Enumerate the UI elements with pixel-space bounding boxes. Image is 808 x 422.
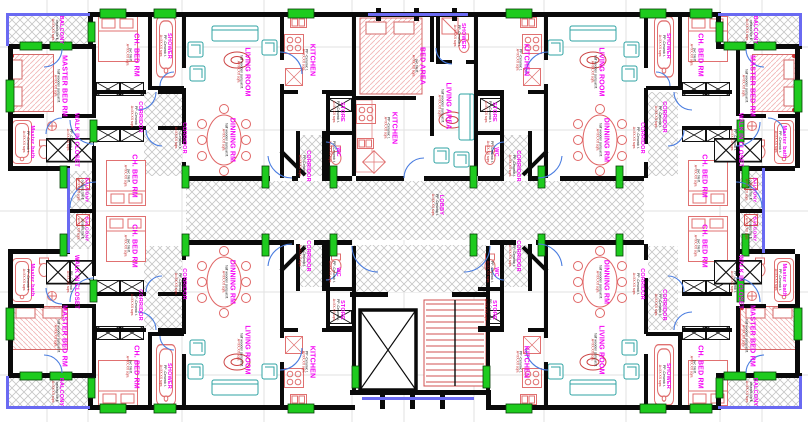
room-name: CORRIDOR (137, 101, 143, 133)
room-label: CORRIDOR PP -Ceramic t. A=XX.XX sqm. (653, 289, 667, 321)
room-area: A=XX.XX sqm. (692, 235, 696, 258)
room-name: CORRIDOR (305, 240, 311, 272)
room-label: LIVING AREA half wooden parquet fl. A=XX… (436, 82, 451, 129)
room-label: Master bath PP -Ceramic t. A=XX.XX sqm. (21, 263, 35, 296)
room-label: WALK IN CLOSET PP -Ceramic t. A=XX.XX sq… (65, 255, 79, 309)
room-area: A=XX.XX sqm. (773, 131, 777, 154)
room-area: A=XX.XX sqm. (452, 25, 456, 48)
room-label: MASTER BED RM half wooden parquet fl. A=… (740, 55, 755, 117)
room-label: Master bath PP -Ceramic t. A=XX.XX sqm. (773, 125, 787, 158)
room-name: CH. BED RM (700, 224, 708, 268)
room-name: CORRIDOR (137, 289, 143, 321)
room-floor-spec: PP -Ceramic t. (635, 273, 639, 295)
room-name: CH. BED RM (130, 154, 138, 198)
room-area: A=XX.XX sqm. (744, 19, 748, 42)
room-area: A=XX.XX sqm. (129, 294, 133, 317)
room-area: A=XX.XX sqm. (65, 129, 69, 152)
room-label: CORRIDOR PP -Ceramic t. A=XX.XX sqm. (631, 122, 645, 154)
room-area: A=XX.XX sqm. (436, 95, 440, 118)
room-floor-spec: pvc tile fl. (692, 360, 696, 374)
room-floor-spec: half wooden parquet fl. (56, 69, 60, 103)
room-labels-layer: BALCONY ceramic tile fl. A=XX.XX sqm. MA… (0, 0, 808, 422)
room-name: BALCONY (751, 177, 756, 202)
room-name: CH. BED RM (130, 224, 138, 268)
room-name: Master bath (29, 263, 35, 296)
room-area: A=XX.XX sqm. (657, 35, 661, 58)
room-area: A=XX.XX sqm. (589, 339, 593, 362)
room-area: A=XX.XX sqm. (589, 61, 593, 84)
room-name: SHOWER (166, 363, 172, 389)
room-floor-spec: PP -Ceramic t. (335, 101, 339, 123)
room-label: KITCHEN PP -Ceramic t. A=XX.XX sqm. (300, 346, 315, 379)
room-area: A=XX.XX sqm. (594, 129, 598, 152)
room-floor-spec: PP -Ceramic t. (777, 131, 781, 153)
room-floor-spec: PP -Ceramic t. (162, 365, 166, 387)
room-area: A=XX.XX sqm. (173, 127, 177, 150)
room-name: DINNING RM (228, 118, 236, 162)
room-label: LIVING ROOM half wooden parquet fl. A=XX… (589, 47, 604, 96)
room-name: Master bath (29, 125, 35, 158)
room-floor-spec: PP -Ceramic t. (301, 245, 305, 267)
room-floor-spec: PP -Ceramic t. (661, 365, 665, 387)
room-name: KITCHEN (308, 346, 316, 379)
room-floor-spec: PP -Ceramic t. (635, 127, 639, 149)
room-name: DINNING RM (602, 118, 610, 162)
room-area: A=XX.XX sqm. (158, 35, 162, 58)
room-name: CORRIDOR (181, 122, 187, 154)
room-name: STORE (339, 102, 345, 122)
room-area: A=XX.XX sqm. (235, 339, 239, 362)
room-floor-spec: PP -Ceramic t. (301, 155, 305, 177)
room-floor-spec: PP -Ceramic t. (386, 117, 390, 139)
room-floor-spec: ceramic tile fl. (747, 180, 751, 201)
room-label: CORRIDOR PP -Ceramic t. A=XX.XX sqm. (507, 240, 521, 272)
room-area: A=XX.XX sqm. (331, 299, 335, 322)
room-area: A=XX.XX sqm. (50, 381, 54, 404)
room-area: A=XX.XX sqm. (688, 356, 692, 379)
room-area: A=XX.XX sqm. (297, 245, 301, 268)
room-area: A=XX.XX sqm. (220, 129, 224, 152)
room-name: WC (493, 267, 499, 277)
room-label: KITCHEN PP -Ceramic t. A=XX.XX sqm. (300, 44, 315, 77)
room-label: MASTER BED RM half wooden parquet fl. A=… (52, 55, 67, 117)
room-name: CH. BED RM (700, 154, 708, 198)
room-name: BALCONY (58, 378, 64, 407)
room-name: CORRIDOR (639, 268, 645, 300)
room-floor-spec: PP -Ceramic t. (489, 141, 493, 163)
room-floor-spec: PP -Ceramic t. (162, 35, 166, 57)
room-label: CH. BED RM pvc tile fl. A=XX.XX sqm. (688, 345, 703, 389)
room-floor-spec: PP -Ceramic t. (733, 129, 737, 151)
room-area: A=XX.XX sqm. (21, 131, 25, 154)
room-name: CH. BED RM (132, 33, 140, 77)
room-label: WALK IN CLOSET PP -Ceramic t. A=XX.XX sq… (729, 113, 743, 167)
room-area: A=XX.XX sqm. (173, 273, 177, 296)
room-name: CH. BED RM (132, 345, 140, 389)
room-label: KITCHEN PP -Ceramic t. A=XX.XX sqm. (514, 346, 529, 379)
room-label: Master bath PP -Ceramic t. A=XX.XX sqm. (773, 263, 787, 296)
room-floor-spec: PP -Ceramic t. (518, 49, 522, 71)
room-name: SHOWER (665, 33, 671, 59)
room-area: A=XX.XX sqm. (124, 356, 128, 379)
room-name: LIVING AREA (444, 82, 452, 129)
room-label: STORE PP -Ceramic t. A=XX.XX sqm. (331, 101, 345, 124)
room-floor-spec: PP -Ceramic t. (304, 351, 308, 373)
room-floor-spec: half wooden parquet fl. (239, 333, 243, 367)
room-area: A=XX.XX sqm. (514, 49, 518, 72)
room-area: A=XX.XX sqm. (740, 325, 744, 348)
room-floor-spec: PP -Ceramic t. (511, 245, 515, 267)
room-name: CORRIDOR (305, 150, 311, 182)
room-name: BALCONY (83, 216, 88, 241)
room-label: STORE PP -Ceramic t. A=XX.XX sqm. (331, 299, 345, 322)
room-label: BALCONY ceramic tile fl. A=XX.XX sqm. (50, 16, 64, 45)
room-floor-spec: half wooden parquet fl. (239, 55, 243, 89)
room-floor-spec: half wooden parquet fl. (598, 265, 602, 299)
room-floor-spec: PP -Ceramic t. (133, 106, 137, 128)
room-label: SHOWER PP -Ceramic t. A=XX.XX sqm. (452, 23, 466, 49)
room-floor-spec: half wooden parquet fl. (593, 333, 597, 367)
room-area: A=XX.XX sqm. (729, 129, 733, 152)
room-area: A=XX.XX sqm. (50, 19, 54, 42)
room-area: A=XX.XX sqm. (122, 235, 126, 258)
room-area: A=XX.XX sqm. (631, 273, 635, 296)
room-area: A=XX.XX sqm. (594, 271, 598, 294)
room-area: A=XX.XX sqm. (76, 218, 80, 241)
room-name: CORRIDOR (181, 268, 187, 300)
room-floor-spec: half wooden parquet fl. (744, 69, 748, 103)
room-area: A=XX.XX sqm. (744, 381, 748, 404)
room-name: KITCHEN (522, 346, 530, 379)
room-area: A=XX.XX sqm. (382, 117, 386, 140)
room-name: LIVING ROOM (597, 325, 605, 374)
room-name: CH. BED RM (696, 345, 704, 389)
room-area: A=XX.XX sqm. (744, 179, 748, 202)
room-name: KITCHEN (308, 44, 316, 77)
room-label: CORRIDOR PP -Ceramic t. A=XX.XX sqm. (173, 122, 187, 154)
room-floor-spec: pvc tile fl. (696, 239, 700, 253)
room-floor-spec: PP -Ceramic t. (69, 271, 73, 293)
room-label: BALCONY ceramic tile fl. A=XX.XX sqm. (744, 16, 758, 45)
room-floor-spec: PP -Ceramic t. (25, 131, 29, 153)
room-area: A=XX.XX sqm. (21, 269, 25, 292)
room-floor-spec: pvc tile fl. (692, 48, 696, 62)
room-floor-spec: half wooden parquet fl. (56, 319, 60, 353)
room-area: A=XX.XX sqm. (485, 261, 489, 284)
room-label: WC PP -Ceramic t. A=XX.XX sqm. (485, 261, 499, 284)
room-name: WALK IN CLOSET (72, 113, 79, 167)
room-area: A=XX.XX sqm. (235, 61, 239, 84)
room-area: A=XX.XX sqm. (129, 106, 133, 129)
room-name: KITCHEN (522, 44, 530, 77)
room-name: Master bath (781, 263, 787, 296)
room-name: WC (335, 147, 341, 157)
room-label: BED AREA pvc tile fl. A=XX.XX sqm. (410, 47, 425, 85)
room-label: DINNING RM half wooden parquet fl. A=XX.… (594, 260, 609, 304)
room-name: KITCHEN (390, 112, 398, 145)
room-label: CH. BED RM pvc tile fl. A=XX.XX sqm. (688, 33, 703, 77)
room-label: CORRIDOR PP -Ceramic t. A=XX.XX sqm. (129, 289, 143, 321)
room-floor-spec: pvc tile fl. (126, 239, 130, 253)
room-area: A=XX.XX sqm. (124, 44, 128, 67)
room-area: A=XX.XX sqm. (122, 165, 126, 188)
room-label: MASTER BED RM half wooden parquet fl. A=… (740, 305, 755, 367)
room-area: A=XX.XX sqm. (65, 271, 69, 294)
room-area: A=XX.XX sqm. (773, 269, 777, 292)
room-floor-spec: ceramic tile fl. (748, 20, 752, 41)
room-floor-spec: PP -Ceramic t. (177, 127, 181, 149)
room-label: DINNING RM half wooden parquet fl. A=XX.… (594, 118, 609, 162)
room-name: CORRIDOR (515, 150, 521, 182)
room-label: CH. BED RM pvc tile fl. A=XX.XX sqm. (124, 345, 139, 389)
room-area: A=XX.XX sqm. (507, 245, 511, 268)
room-name: CORRIDOR (639, 122, 645, 154)
room-name: CORRIDOR (515, 240, 521, 272)
room-floor-spec: PP -Ceramic t. (777, 269, 781, 291)
room-name: SHOWER (460, 23, 466, 49)
room-label: LIVING ROOM half wooden parquet fl. A=XX… (589, 325, 604, 374)
room-floor-spec: PP -Ceramic t. (335, 299, 339, 321)
room-name: MASTER BED RM (60, 305, 68, 367)
room-area: A=XX.XX sqm. (631, 127, 635, 150)
room-floor-spec: PP -Ceramic t. (518, 351, 522, 373)
room-floor-spec: PP -Ceramic t. (69, 129, 73, 151)
room-label: CORRIDOR PP -Ceramic t. A=XX.XX sqm. (297, 240, 311, 272)
room-floor-spec: pvc tile fl. (128, 48, 132, 62)
room-floor-spec: half wooden parquet fl. (598, 123, 602, 157)
room-area: A=XX.XX sqm. (740, 75, 744, 98)
room-area: A=XX.XX sqm. (327, 141, 331, 164)
room-floor-spec: PP -Ceramic t. (487, 101, 491, 123)
room-area: A=XX.XX sqm. (688, 44, 692, 67)
room-name: WALK IN CLOSET (72, 255, 79, 309)
room-area: A=XX.XX sqm. (430, 194, 434, 217)
room-label: BALCONY ceramic tile fl. A=XX.XX sqm. (744, 216, 757, 241)
room-area: A=XX.XX sqm. (653, 294, 657, 317)
room-name: LIVING ROOM (243, 325, 251, 374)
room-floor-spec: PP -Ceramic t. (489, 261, 493, 283)
room-floor-spec: pvc tile fl. (128, 360, 132, 374)
room-area: A=XX.XX sqm. (327, 261, 331, 284)
room-label: DINNING RM half wooden parquet fl. A=XX.… (220, 118, 235, 162)
room-label: BALCONY ceramic tile fl. A=XX.XX sqm. (50, 378, 64, 407)
room-floor-spec: pvc tile fl. (126, 169, 130, 183)
room-name: DINNING RM (602, 260, 610, 304)
room-name: LIVING ROOM (597, 47, 605, 96)
room-floor-spec: ceramic tile fl. (79, 180, 83, 201)
room-label: LIVING ROOM half wooden parquet fl. A=XX… (235, 47, 250, 96)
room-name: BALCONY (751, 216, 756, 241)
room-label: CH. BED RM pvc tile fl. A=XX.XX sqm. (692, 154, 707, 198)
room-floor-spec: half wooden parquet fl. (224, 265, 228, 299)
room-label: BALCONY ceramic tile fl. A=XX.XX sqm. (76, 216, 89, 241)
room-name: WALK IN CLOSET (736, 113, 743, 167)
room-name: SHOWER (166, 33, 172, 59)
room-label: KITCHEN PP -Ceramic t. A=XX.XX sqm. (382, 112, 397, 145)
room-name: LIVING ROOM (243, 47, 251, 96)
room-label: WALK IN CLOSET PP -Ceramic t. A=XX.XX sq… (65, 113, 79, 167)
room-floor-spec: half wooden parquet fl. (744, 319, 748, 353)
room-label: WC PP -Ceramic t. A=XX.XX sqm. (327, 141, 341, 164)
room-area: A=XX.XX sqm. (692, 165, 696, 188)
room-name: WC (335, 267, 341, 277)
room-name: LOBBY (438, 195, 444, 215)
room-floor-spec: ceramic tile fl. (79, 219, 83, 240)
room-floor-spec: pvc tile fl. (696, 169, 700, 183)
room-label: LOBBY PP -Ceramic t. A=XX.XX sqm. (430, 194, 444, 217)
room-label: Master bath PP -Ceramic t. A=XX.XX sqm. (21, 125, 35, 158)
room-name: STORE (491, 102, 497, 122)
room-name: Master bath (781, 125, 787, 158)
room-label: WC PP -Ceramic t. A=XX.XX sqm. (485, 141, 499, 164)
room-area: A=XX.XX sqm. (744, 218, 748, 241)
room-floor-spec: PP -Ceramic t. (304, 49, 308, 71)
room-area: A=XX.XX sqm. (507, 155, 511, 178)
room-label: SHOWER PP -Ceramic t. A=XX.XX sqm. (158, 33, 172, 59)
room-floor-spec: PP -Ceramic t. (177, 273, 181, 295)
room-name: SHOWER (665, 363, 671, 389)
room-floor-spec: PP -Ceramic t. (133, 294, 137, 316)
room-floor-spec: PP -Ceramic t. (25, 269, 29, 291)
room-area: A=XX.XX sqm. (657, 365, 661, 388)
room-floor-spec: pvc tile fl. (414, 59, 418, 73)
room-label: CORRIDOR PP -Ceramic t. A=XX.XX sqm. (631, 268, 645, 300)
room-floor-spec: PP -Ceramic t. (661, 35, 665, 57)
room-name: CH. BED RM (696, 33, 704, 77)
floor-plan-canvas: BALCONY ceramic tile fl. A=XX.XX sqm. MA… (0, 0, 808, 422)
room-area: A=XX.XX sqm. (729, 271, 733, 294)
room-label: DINNING RM half wooden parquet fl. A=XX.… (220, 260, 235, 304)
room-floor-spec: PP -Ceramic t. (434, 194, 438, 216)
room-floor-spec: PP -Ceramic t. (657, 106, 661, 128)
room-floor-spec: ceramic tile fl. (747, 219, 751, 240)
room-label: WC PP -Ceramic t. A=XX.XX sqm. (327, 261, 341, 284)
room-name: MASTER BED RM (748, 55, 756, 117)
room-name: BALCONY (83, 177, 88, 202)
room-label: STORE PP -Ceramic t. A=XX.XX sqm. (483, 299, 497, 322)
room-label: BALCONY ceramic tile fl. A=XX.XX sqm. (76, 177, 89, 202)
room-label: BALCONY ceramic tile fl. A=XX.XX sqm. (744, 177, 757, 202)
room-label: SHOWER PP -Ceramic t. A=XX.XX sqm. (158, 363, 172, 389)
room-floor-spec: PP -Ceramic t. (733, 271, 737, 293)
room-area: A=XX.XX sqm. (483, 299, 487, 322)
room-floor-spec: PP -Ceramic t. (511, 155, 515, 177)
room-label: CORRIDOR PP -Ceramic t. A=XX.XX sqm. (129, 101, 143, 133)
room-floor-spec: half wooden parquet fl. (593, 55, 597, 89)
room-area: A=XX.XX sqm. (52, 75, 56, 98)
room-name: BED AREA (418, 47, 426, 85)
room-area: A=XX.XX sqm. (483, 101, 487, 124)
room-area: A=XX.XX sqm. (300, 351, 304, 374)
room-name: WALK IN CLOSET (736, 255, 743, 309)
room-floor-spec: ceramic tile fl. (748, 382, 752, 403)
room-floor-spec: half wooden parquet fl. (440, 89, 444, 123)
room-name: BALCONY (752, 378, 758, 407)
room-area: A=XX.XX sqm. (158, 365, 162, 388)
room-area: A=XX.XX sqm. (52, 325, 56, 348)
room-name: WC (493, 147, 499, 157)
room-label: CORRIDOR PP -Ceramic t. A=XX.XX sqm. (653, 101, 667, 133)
room-name: CORRIDOR (661, 101, 667, 133)
room-area: A=XX.XX sqm. (485, 141, 489, 164)
room-name: CORRIDOR (661, 289, 667, 321)
room-label: KITCHEN PP -Ceramic t. A=XX.XX sqm. (514, 44, 529, 77)
room-floor-spec: PP -Ceramic t. (487, 299, 491, 321)
room-label: CORRIDOR PP -Ceramic t. A=XX.XX sqm. (507, 150, 521, 182)
room-name: MASTER BED RM (60, 55, 68, 117)
room-label: LIVING ROOM half wooden parquet fl. A=XX… (235, 325, 250, 374)
room-label: STORE PP -Ceramic t. A=XX.XX sqm. (483, 101, 497, 124)
room-area: A=XX.XX sqm. (220, 271, 224, 294)
room-label: CH. BED RM pvc tile fl. A=XX.XX sqm. (692, 224, 707, 268)
room-area: A=XX.XX sqm. (76, 179, 80, 202)
room-floor-spec: PP -Ceramic t. (331, 261, 335, 283)
room-area: A=XX.XX sqm. (331, 101, 335, 124)
room-label: MASTER BED RM half wooden parquet fl. A=… (52, 305, 67, 367)
room-area: A=XX.XX sqm. (410, 55, 414, 78)
room-label: CH. BED RM pvc tile fl. A=XX.XX sqm. (122, 224, 137, 268)
room-label: CH. BED RM pvc tile fl. A=XX.XX sqm. (124, 33, 139, 77)
room-floor-spec: half wooden parquet fl. (224, 123, 228, 157)
room-name: STORE (339, 300, 345, 320)
room-floor-spec: PP -Ceramic t. (331, 141, 335, 163)
room-name: BALCONY (752, 16, 758, 45)
room-floor-spec: ceramic tile fl. (54, 20, 58, 41)
room-name: DINNING RM (228, 260, 236, 304)
room-name: STORE (491, 300, 497, 320)
room-area: A=XX.XX sqm. (297, 155, 301, 178)
room-label: CORRIDOR PP -Ceramic t. A=XX.XX sqm. (297, 150, 311, 182)
room-label: CORRIDOR PP -Ceramic t. A=XX.XX sqm. (173, 268, 187, 300)
room-floor-spec: PP -Ceramic t. (456, 25, 460, 47)
room-floor-spec: PP -Ceramic t. (657, 294, 661, 316)
room-label: SHOWER PP -Ceramic t. A=XX.XX sqm. (657, 33, 671, 59)
room-label: WALK IN CLOSET PP -Ceramic t. A=XX.XX sq… (729, 255, 743, 309)
room-area: A=XX.XX sqm. (514, 351, 518, 374)
room-label: SHOWER PP -Ceramic t. A=XX.XX sqm. (657, 363, 671, 389)
room-label: BALCONY ceramic tile fl. A=XX.XX sqm. (744, 378, 758, 407)
room-area: A=XX.XX sqm. (300, 49, 304, 72)
room-label: CH. BED RM pvc tile fl. A=XX.XX sqm. (122, 154, 137, 198)
room-floor-spec: ceramic tile fl. (54, 382, 58, 403)
room-name: BALCONY (58, 16, 64, 45)
room-name: MASTER BED RM (748, 305, 756, 367)
room-area: A=XX.XX sqm. (653, 106, 657, 129)
